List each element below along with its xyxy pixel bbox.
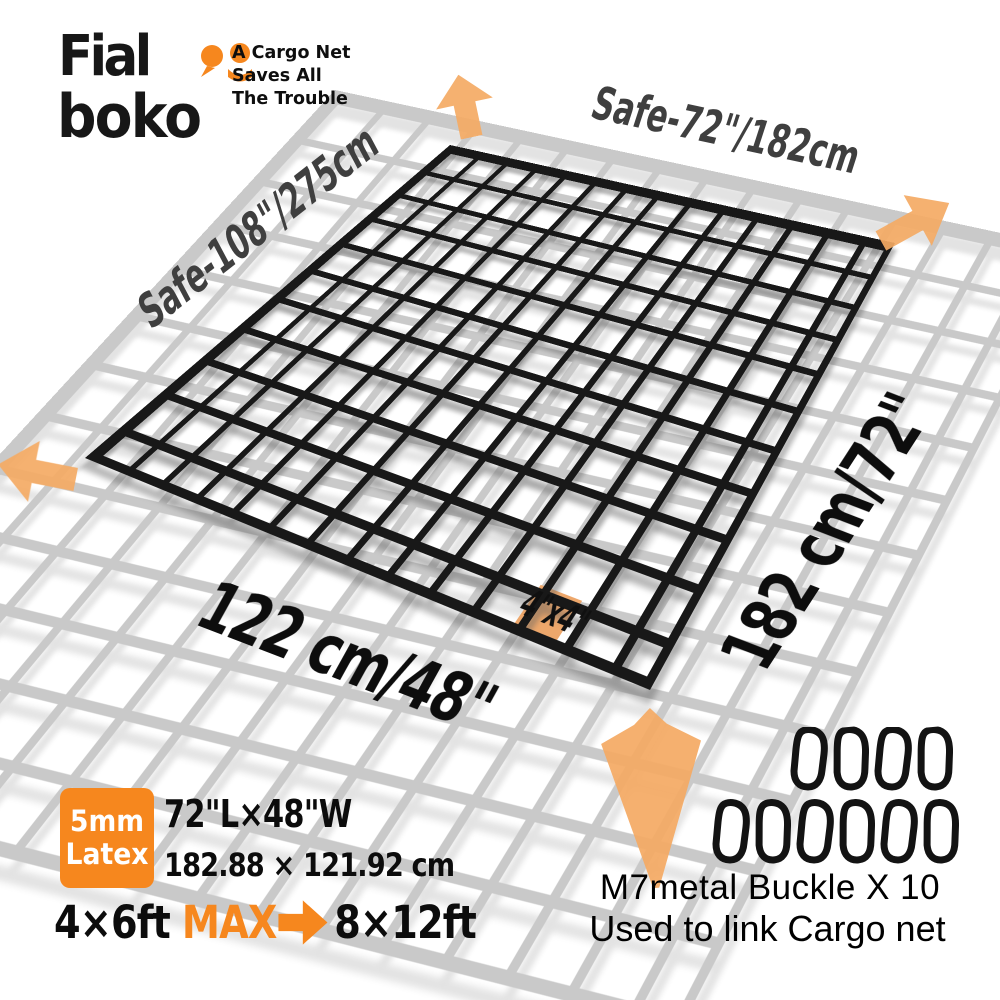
carabiner-icon <box>872 727 912 791</box>
buckle-caption-line1: M7metal Buckle X 10 <box>545 868 995 908</box>
buckle-row-1 <box>788 727 954 791</box>
brand-wordmark-line1: Fial <box>58 24 149 89</box>
stretch-to: 8×12ft <box>334 896 476 949</box>
carabiner-icon <box>794 799 834 865</box>
material-badge: 5mm Latex <box>60 788 154 888</box>
dimensions-cm: 182.88 × 121.92 cm <box>164 846 454 884</box>
carabiner-icon <box>788 727 828 791</box>
arrow-right-icon <box>278 899 327 947</box>
tagline-line2: Saves All <box>232 65 350 88</box>
stretch-spec: 4×6ft MAX 8×12ft <box>54 896 476 949</box>
material-badge-line2: Latex <box>64 838 150 871</box>
tagline-line3: The Trouble <box>232 88 350 111</box>
stretch-max-label: MAX <box>182 896 277 949</box>
buckle-row-2 <box>710 799 960 865</box>
tagline-line1: A Cargo Net <box>232 42 350 65</box>
brand-tagline: A Cargo Net Saves All The Trouble <box>232 42 350 111</box>
stretch-from: 4×6ft <box>54 896 170 949</box>
carabiner-icon <box>827 725 872 792</box>
carabiner-icon <box>911 725 956 792</box>
carabiner-icon <box>917 797 963 866</box>
brand-wordmark-line2: boko <box>57 82 200 152</box>
buckle-caption-line2: Used to link Cargo net <box>535 908 1000 950</box>
carabiner-icon <box>878 799 918 865</box>
cargo-net-product-image: 4"x4" Safe-72"/182cm Safe-108"/275cm 122… <box>0 0 1000 1000</box>
carabiner-icon <box>833 797 879 866</box>
carabiner-icon <box>710 799 750 865</box>
material-badge-line1: 5mm <box>64 805 150 838</box>
carabiner-icon <box>749 797 795 866</box>
dimensions-inches: 72"L×48"W <box>164 792 351 836</box>
